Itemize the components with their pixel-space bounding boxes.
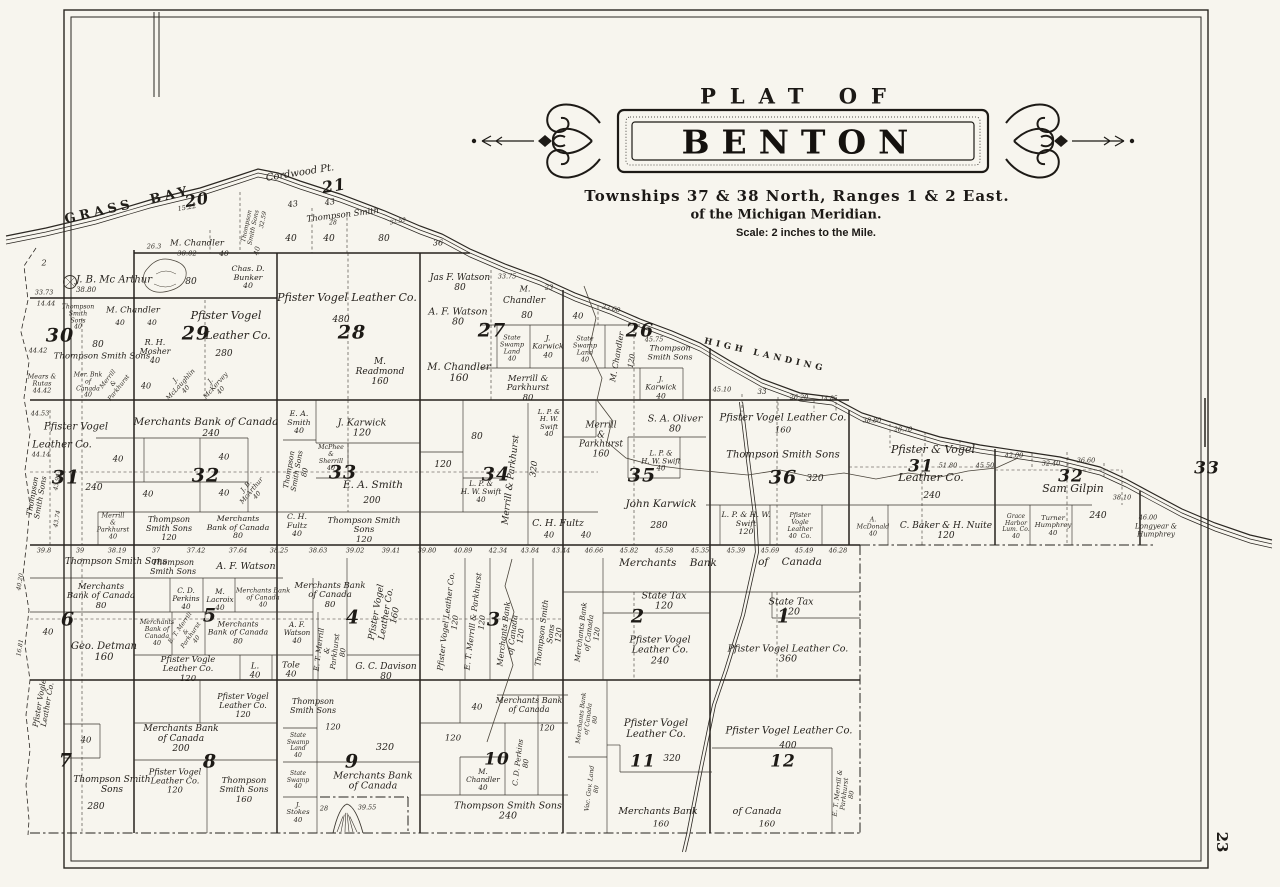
parcel-label: 160: [775, 426, 791, 435]
parcel-label: 23: [545, 284, 553, 291]
parcel-label: Merchants Bank of Canada 80: [208, 621, 268, 646]
parcel-label: 39: [76, 547, 84, 554]
parcel-label: Geo. Detman 160: [71, 641, 137, 663]
parcel-label: 28.70: [894, 426, 913, 433]
parcel-label: Pfister Vogel Leather Co.: [277, 292, 417, 304]
parcel-label: Thompson Smith Sons 120: [146, 516, 192, 542]
parcel-label: Turner Humphrey 40: [1035, 515, 1072, 537]
parcel-label: 40.89: [454, 547, 473, 554]
parcel-label: 320: [529, 460, 540, 477]
parcel-label: 38.19: [108, 547, 127, 554]
parcel-label: 40: [147, 319, 157, 327]
parcel-label: 160: [653, 820, 669, 829]
parcel-label: 40: [141, 383, 151, 392]
parcel-label: Merchants Bank of Canada 80: [295, 582, 366, 610]
parcel-label: 39.55: [358, 804, 377, 811]
parcel-label: 80: [521, 312, 532, 322]
parcel-label: 42.00: [1005, 452, 1024, 459]
parcel-label: Leather Co.: [898, 472, 963, 484]
parcel-label: 40: [81, 736, 92, 745]
parcel-label: 43: [324, 198, 335, 208]
parcel-label: Merrill & Parkhurst 160: [579, 422, 623, 461]
parcel-label: Merchants Bank of Canada 40: [236, 587, 290, 608]
parcel-label: 28: [320, 805, 328, 812]
parcel-label: Merchants Bank: [619, 558, 717, 570]
parcel-label: Pfister Vogel Leather Co.: [624, 718, 688, 740]
parcel-label: L. 40: [250, 663, 261, 682]
parcel-label: Pfister Vogel: [44, 422, 108, 433]
parcel-label: 38.80: [863, 417, 882, 424]
parcel-label: 33.75: [498, 273, 517, 280]
parcel-label: 45.50: [976, 462, 995, 469]
parcel-label: Leather Co.: [32, 440, 92, 451]
parcel-label: Thompson Smith Sons 160: [220, 777, 269, 805]
parcel-label: A. F. Watson: [216, 562, 275, 572]
parcel-label: Pfister Vogel Leather Co.: [720, 413, 847, 424]
parcel-label: Pfister Vogle Leather 40 Co.: [788, 513, 813, 541]
parcel-label: E. A. Smith: [343, 480, 403, 492]
parcel-label: Merchants Bank: [618, 807, 697, 817]
parcel-label: 44.42: [29, 347, 48, 354]
parcel-label: Thompson Smith Sons: [73, 776, 150, 796]
parcel-label: John Karwick: [625, 499, 696, 511]
parcel-label: 32.40: [1042, 460, 1061, 467]
parcel-label: 45.69: [761, 547, 780, 554]
parcel-label: C. D. Perkins 40: [172, 587, 199, 611]
parcel-label: M. Readmond 160: [356, 358, 405, 388]
parcel-label: 45.82: [620, 547, 639, 554]
parcel-label: 320: [663, 755, 680, 765]
parcel-label: Thompson Smith Sons: [726, 450, 839, 461]
parcel-label: G. C. Davison 80: [355, 663, 416, 683]
parcel-label: 40: [219, 453, 230, 462]
parcel-label: L. P. & H. W. Swift 40: [538, 409, 560, 439]
parcel-label: 40: [219, 489, 230, 498]
parcel-label: J. Stokes 40: [286, 802, 309, 824]
parcel-label: A. F. Watson 80: [428, 308, 487, 329]
parcel-label: Thompson Smith Sons 240: [454, 802, 562, 823]
plat-subtitle-townships: Townships 37 & 38 North, Ranges 1 & 2 Ea…: [584, 187, 1009, 205]
parcel-label: M. Chandler: [106, 306, 160, 315]
parcel-label: 38.02: [177, 250, 196, 257]
section-number: 12: [770, 753, 796, 772]
parcel-label: Pfister Vogel Leather Co. 120: [149, 767, 202, 794]
parcel-label: 39.8: [37, 547, 51, 554]
parcel-label: Mears & Rutas 44.42: [28, 373, 57, 394]
parcel-label: M.: [520, 286, 531, 295]
parcel-label: 120: [539, 725, 554, 734]
parcel-label: of Canada: [733, 807, 782, 817]
parcel-label: 43.84: [521, 547, 540, 554]
parcel-label: Merchants Bank of Canada 80: [207, 515, 270, 541]
parcel-label: 39.80: [418, 547, 437, 554]
parcel-label: 480: [332, 316, 349, 326]
parcel-label: 240: [1089, 512, 1106, 522]
parcel-label: State Swamp Land 40: [500, 335, 524, 364]
parcel-label: 33.73: [35, 289, 54, 296]
parcel-label: Pfister Vogel Leather Co. 120: [217, 693, 268, 719]
parcel-label: 38.80: [76, 287, 96, 295]
parcel-label: 40: [143, 490, 154, 499]
parcel-label: 280: [215, 350, 232, 360]
parcel-label: McPhee & Sherrill 40: [318, 445, 344, 473]
parcel-label: 42.34: [489, 547, 508, 554]
parcel-label: 40: [323, 235, 334, 245]
parcel-label: 43.44: [552, 547, 571, 554]
parcel-label: 280: [650, 522, 667, 532]
parcel-label: S. A. Oliver 80: [648, 415, 703, 436]
parcel-label: Pfister Vogle Leather Co. 120: [161, 656, 216, 684]
section-number: 11: [630, 753, 656, 772]
parcel-label: 40: [581, 532, 591, 541]
parcel-label: 80: [185, 278, 196, 288]
parcel-label: Pfister Vogel Leather Co. 360: [728, 645, 849, 666]
parcel-label: Chandler: [503, 297, 545, 307]
plat-scale-note: Scale: 2 inches to the Mile.: [736, 227, 876, 239]
parcel-label: Pfister Vogel: [191, 310, 262, 322]
parcel-label: 26.3: [147, 243, 161, 250]
section-number: 36: [769, 468, 797, 489]
parcel-label: J. Karwick 40: [532, 335, 563, 360]
parcel-label: 45.10: [713, 386, 732, 393]
parcel-label: Pfister & Vogel: [891, 444, 975, 456]
parcel-label: L. P. & H. W. Swift 120: [721, 511, 770, 537]
parcel-label: Jas F. Watson 80: [430, 274, 490, 294]
parcel-label: Merrill & Parkhurst 80: [507, 375, 549, 403]
parcel-label: 36.60: [1077, 457, 1096, 464]
parcel-label: 28: [329, 221, 337, 228]
parcel-label: Sam Gilpin: [1042, 483, 1104, 495]
section-number: 21: [321, 175, 348, 197]
parcel-label: 40: [285, 235, 296, 245]
parcel-label: M. Chandler: [170, 239, 224, 248]
parcel-label: State Swamp Land 40: [287, 733, 309, 759]
parcel-label: Thompson Smith Sons 40: [62, 304, 95, 331]
parcel-label: R. H. Mosher 40: [140, 339, 171, 365]
section-number: 6: [61, 610, 75, 631]
parcel-label: 46.66: [585, 547, 604, 554]
parcel-label: 280: [87, 803, 104, 813]
parcel-label: Thompson Smith Sons: [54, 352, 150, 361]
parcel-label: J. B. Mc Arthur: [76, 275, 152, 286]
parcel-label: 36: [433, 240, 443, 249]
section-number: 7: [59, 751, 73, 772]
parcel-label: 51.80: [939, 462, 958, 469]
parcel-label: 160: [759, 820, 775, 829]
parcel-label: Merchants Bank of Canada: [333, 772, 412, 793]
parcel-label: 37: [152, 547, 160, 554]
parcel-label: Chas. D. Bunker 40: [231, 265, 264, 291]
parcel-label: 320: [376, 743, 394, 753]
parcel-label: M. Chandler 40: [466, 768, 500, 792]
parcel-label: E. T. Merrill & Parkhurst 80: [313, 627, 350, 674]
parcel-label: C. H. Fultz: [532, 519, 584, 529]
parcel-label: State Tax 120: [768, 598, 813, 619]
parcel-label: 46.28: [829, 547, 848, 554]
parcel-label: 33: [758, 389, 767, 397]
parcel-label: J. Karwick 40: [645, 376, 676, 401]
parcel-label: E. A. Smith 40: [287, 410, 310, 436]
parcel-label: Thompson Smith Sons: [150, 559, 196, 577]
section-number: 9: [345, 752, 359, 773]
parcel-label: 46.00: [1139, 514, 1158, 521]
plat-kicker: PLAT OF: [700, 84, 900, 109]
parcel-label: 43: [287, 200, 298, 210]
parcel-label: 40: [472, 703, 483, 712]
parcel-label: Merchants Bank of Canada 40: [140, 620, 174, 648]
parcel-label: of Canada: [758, 557, 822, 569]
plat-subtitle-meridian: of the Michigan Meridian.: [690, 208, 881, 223]
parcel-label: 2: [41, 260, 46, 269]
parcel-label: J. Karwick 120: [338, 419, 387, 440]
parcel-label: Pfister Vogel Leather Co.: [726, 726, 853, 737]
parcel-label: 80: [378, 235, 389, 245]
page-number: 23: [1213, 832, 1231, 853]
parcel-label: Merchants Bank of Canada 80: [67, 583, 135, 611]
parcel-label: Thompson Smith Sons: [648, 344, 693, 361]
parcel-label: 45.39: [727, 547, 746, 554]
parcel-label: 45.49: [795, 547, 814, 554]
parcel-label: Thompson Smith Sons 120: [328, 517, 401, 545]
parcel-label: State Swamp 40: [287, 771, 309, 791]
parcel-label: 40: [43, 628, 54, 637]
parcel-label: Leather Co.: [205, 330, 270, 342]
parcel-label: Merrill & Parkhurst 40: [97, 513, 129, 542]
plat-page: GRASS BAYCordwood Pt.HIGH LANDING2021302…: [0, 0, 1280, 887]
parcel-label: Merchants Bank of Canada 200: [143, 725, 218, 755]
section-number: 32: [192, 466, 220, 487]
parcel-label: Grace Harbor Lum. Co. 40: [1002, 514, 1029, 540]
parcel-label: 40: [544, 532, 554, 541]
parcel-label: 37.64: [229, 547, 248, 554]
parcel-label: 44.14: [32, 451, 51, 458]
parcel-label: State Swamp Land 40: [573, 336, 597, 365]
parcel-label: 240: [923, 492, 940, 502]
parcel-label: 38.25: [270, 547, 289, 554]
parcel-label: 80: [92, 341, 103, 351]
parcel-label: A. F. Watson 40: [284, 621, 311, 645]
parcel-label: 40: [573, 312, 584, 321]
parcel-label: 14.85: [820, 397, 837, 404]
parcel-label: C. Baker & H. Nuite 120: [900, 522, 992, 542]
parcel-label: C. H. Fultz 40: [287, 513, 307, 539]
parcel-label: 120: [445, 734, 461, 743]
parcel-label: 40: [115, 319, 125, 327]
section-number: 33: [1194, 460, 1220, 479]
parcel-label: 37.42: [187, 547, 206, 554]
parcel-label: Tole 40: [282, 662, 300, 681]
parcel-label: Longyear & Humphrey: [1135, 523, 1177, 538]
parcel-label: 240: [202, 430, 219, 440]
parcel-label: State Tax 120: [641, 592, 686, 613]
parcel-label: 45.58: [655, 547, 674, 554]
section-number: 4: [346, 608, 360, 629]
parcel-label: Pfister Vogel Leather Co. 240: [629, 635, 690, 666]
parcel-label: Merchants Bank of Canada: [496, 697, 563, 715]
parcel-label: Thompson Smith Sons: [290, 698, 336, 716]
parcel-label: L. P. & H. W. Swift 40: [461, 480, 501, 504]
parcel-label: 14.44: [37, 300, 56, 307]
parcel-label: 39.41: [382, 547, 401, 554]
parcel-label: 240: [85, 484, 102, 494]
plat-title: BENTON: [682, 123, 921, 162]
parcel-label: 120: [325, 724, 340, 733]
parcel-label: 200: [363, 497, 380, 507]
parcel-label: Merchants Bank of Canada: [134, 417, 279, 429]
parcel-label: 400: [779, 742, 796, 752]
parcel-label: 320: [806, 475, 823, 485]
parcel-label: 120: [434, 461, 451, 471]
parcel-label: 45.35: [691, 547, 710, 554]
parcel-label: 38.10: [1113, 494, 1132, 501]
parcel-label: 39.02: [346, 547, 365, 554]
parcel-label: 44.53: [31, 410, 50, 417]
parcel-label: M. Chandler 160: [427, 362, 490, 384]
parcel-label: L. P. & H. W. Swift 40: [641, 450, 680, 473]
parcel-label: 40: [113, 455, 124, 464]
parcel-label: A. McDonald 40: [857, 518, 890, 539]
parcel-label: M. Lacroix 40: [206, 588, 233, 612]
parcel-label: 26.20: [790, 394, 809, 401]
parcel-label: 80: [471, 433, 482, 443]
parcel-label: 40: [219, 250, 229, 258]
parcel-label: 38.63: [309, 547, 328, 554]
